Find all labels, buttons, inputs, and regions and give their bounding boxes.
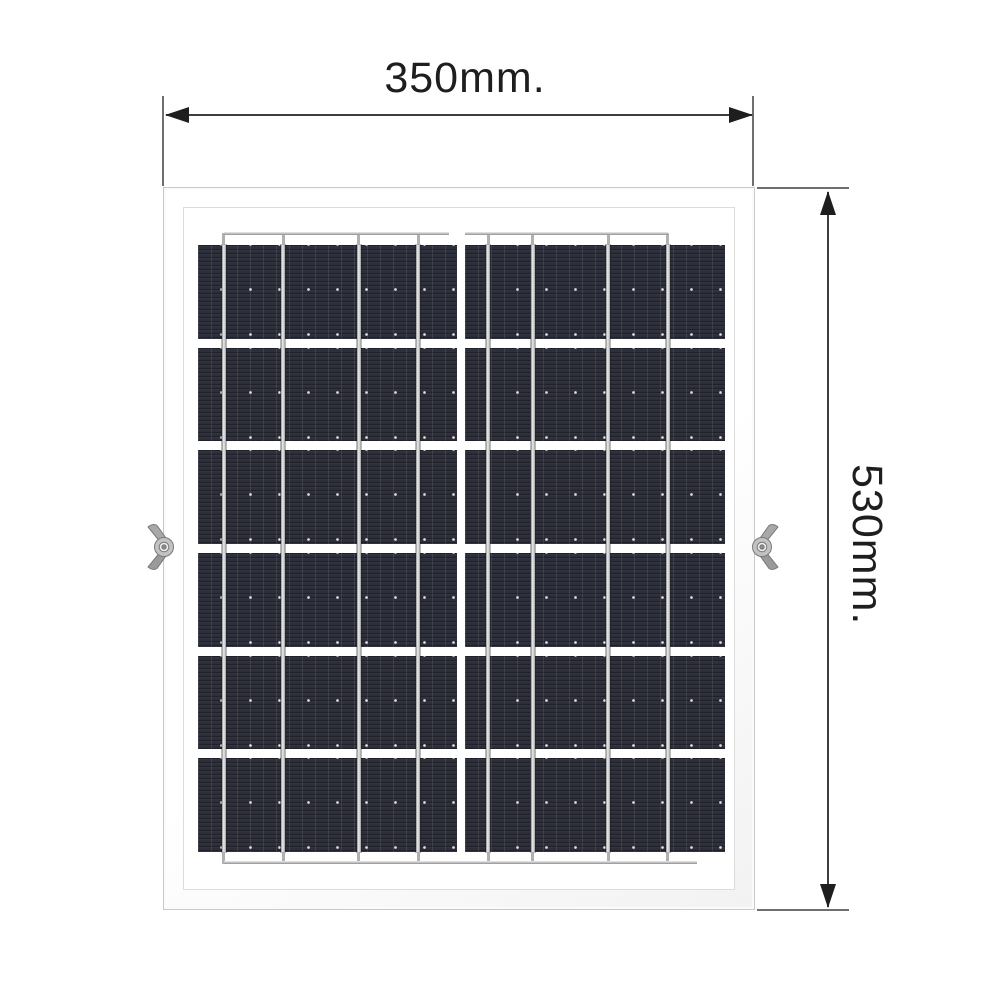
height-dimension-line	[827, 192, 829, 907]
cell-block-right	[465, 656, 725, 750]
cell-row	[198, 245, 725, 339]
cell-row	[198, 450, 725, 544]
cell-block-right	[465, 245, 725, 339]
cell-mid-gap	[457, 553, 465, 647]
cell-block-right	[465, 758, 725, 852]
solar-panel-dimension-diagram: 350mm. 530mm.	[0, 0, 1000, 1000]
busbar-ribbon	[666, 245, 670, 852]
cell-row	[198, 348, 725, 442]
busbar-ribbon	[222, 245, 226, 852]
height-extension-line-top	[757, 187, 849, 189]
interconnect-ribbon	[224, 232, 449, 235]
wing-nut-left-icon	[144, 522, 178, 572]
busbar-ribbon	[606, 245, 610, 852]
cell-block-right	[465, 348, 725, 442]
cell-rows	[198, 245, 725, 852]
width-dimension-label: 350mm.	[320, 54, 610, 103]
width-dimension-line	[166, 114, 752, 116]
cell-mid-gap	[457, 245, 465, 339]
solar-cell-area	[198, 245, 725, 852]
cell-mid-gap	[457, 656, 465, 750]
cell-block-right	[465, 553, 725, 647]
busbar-ribbon	[486, 245, 490, 852]
cell-mid-gap	[457, 450, 465, 544]
busbar-ribbon	[531, 245, 535, 852]
interconnect-ribbon	[224, 861, 697, 864]
solar-panel-frame	[163, 187, 755, 910]
cell-mid-gap	[457, 348, 465, 442]
panel-inner-margin	[183, 207, 735, 890]
busbar-ribbon	[357, 245, 361, 852]
height-dimension-label: 530mm.	[842, 402, 891, 688]
busbar-ribbon	[416, 245, 420, 852]
width-extension-line-left	[162, 96, 164, 186]
arrowhead-right-icon	[729, 107, 753, 123]
arrowhead-left-icon	[165, 107, 189, 123]
height-extension-line-bottom	[757, 909, 849, 911]
cell-row	[198, 553, 725, 647]
interconnect-ribbon	[465, 232, 668, 235]
cell-row	[198, 656, 725, 750]
cell-mid-gap	[457, 758, 465, 852]
busbar-ribbon	[281, 245, 285, 852]
arrowhead-up-icon	[820, 191, 836, 215]
wing-nut-right-icon	[748, 522, 782, 572]
arrowhead-down-icon	[820, 884, 836, 908]
cell-row	[198, 758, 725, 852]
cell-block-right	[465, 450, 725, 544]
